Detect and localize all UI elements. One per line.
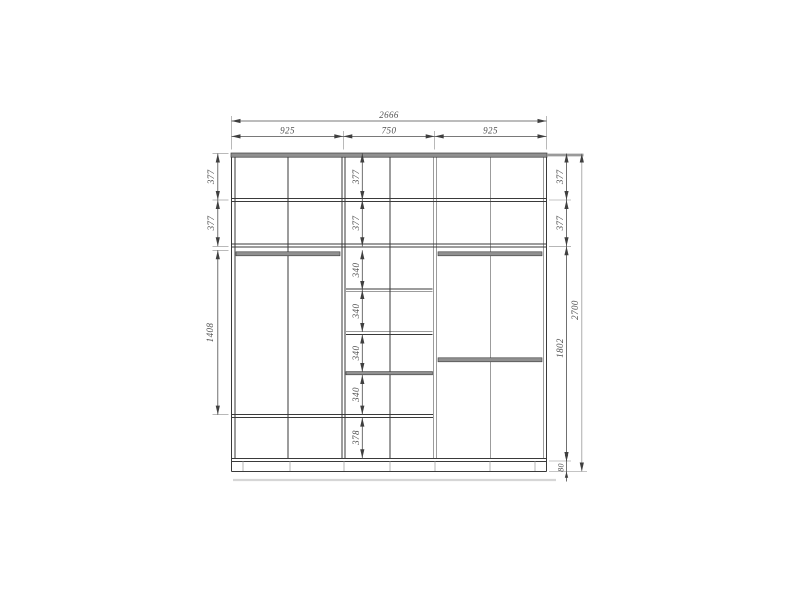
dim-middle-6: 340 [351, 387, 361, 403]
dim-middle-7: 378 [351, 430, 361, 446]
plinth-feet [243, 462, 535, 472]
dim-right-2: 377 [555, 216, 565, 232]
hanging-rod-right-lower [438, 358, 542, 362]
dim-right-1: 377 [555, 169, 565, 185]
dim-middle-3: 340 [351, 263, 361, 279]
dim-left-2: 377 [206, 216, 216, 232]
hanging-rod-left [236, 252, 340, 256]
wardrobe-technical-drawing: 2666 925 750 925 377 377 1408 377 377 34… [0, 0, 800, 600]
dim-middle-5: 340 [351, 346, 361, 362]
dim-right-3: 1802 [555, 338, 565, 358]
hanging-rod-right-upper [438, 252, 542, 256]
dim-width-middle: 750 [382, 125, 397, 135]
dim-right-4: 80 [557, 463, 566, 471]
dim-middle-1: 377 [351, 169, 361, 185]
dimension-lines [218, 121, 582, 482]
dim-middle-2: 377 [351, 216, 361, 232]
dim-total-width: 2666 [379, 110, 399, 120]
dim-left-1: 377 [206, 169, 216, 185]
cabinet-structure [232, 153, 547, 472]
extension-lines [213, 116, 588, 472]
drawing-canvas: 2666 925 750 925 377 377 1408 377 377 34… [0, 0, 800, 600]
dim-middle-4: 340 [351, 304, 361, 320]
hanging-rods [236, 252, 542, 375]
dim-total-height: 2700 [570, 300, 580, 320]
middle-thick-shelf [346, 372, 433, 375]
dim-width-right: 925 [483, 125, 498, 135]
dim-left-3: 1408 [205, 323, 215, 343]
dim-width-left: 925 [280, 125, 295, 135]
top-panel [231, 153, 547, 157]
